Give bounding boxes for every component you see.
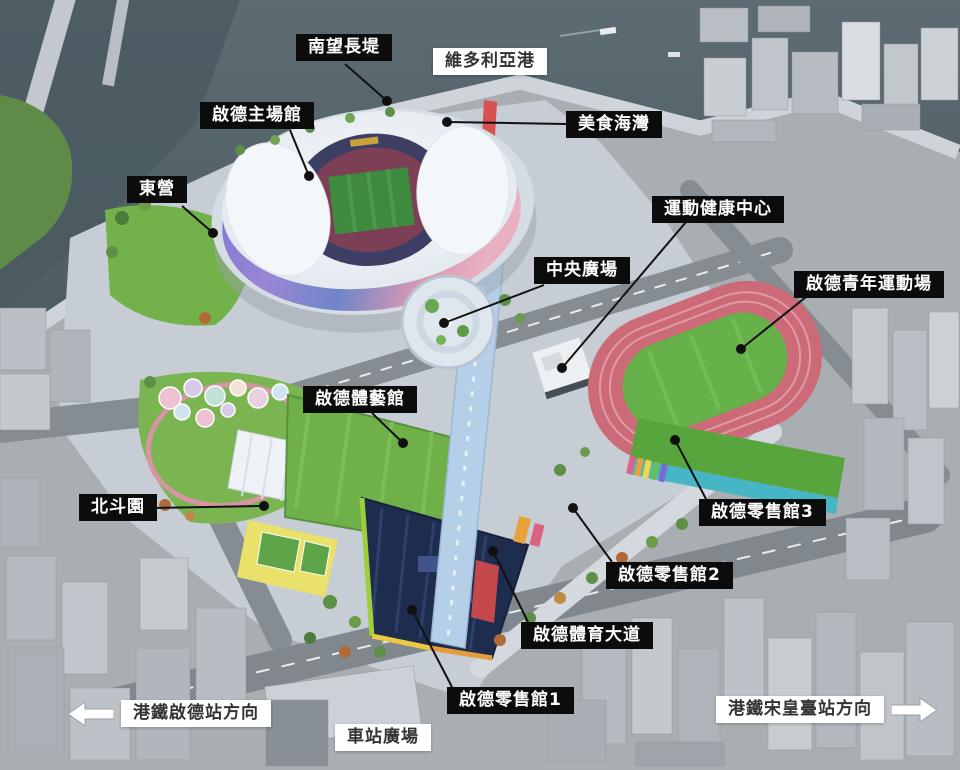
callout-youth-sports-ground: 啟德青年運動場 xyxy=(794,271,944,298)
direction-sign-label: 港鐵宋皇臺站方向 xyxy=(716,696,884,723)
callout-kai-tak-main-stadium: 啟德主場館 xyxy=(200,102,314,129)
callout-south-promenade: 南望長堤 xyxy=(296,34,392,61)
callout-health-wellness-centre: 運動健康中心 xyxy=(652,196,784,223)
area-label-victoria-harbour: 維多利亞港 xyxy=(433,48,547,75)
direction-sign-label: 港鐵啟德站方向 xyxy=(121,700,271,727)
arrow-left-icon xyxy=(68,701,114,727)
callout-tung-ying-lawn: 東營 xyxy=(127,176,187,203)
callout-sports-avenue: 啟德體育大道 xyxy=(521,622,653,649)
callout-dining-cove: 美食海灣 xyxy=(566,111,662,138)
area-label-station-square: 車站廣場 xyxy=(335,724,431,751)
callout-retail-hall-1: 啟德零售館1 xyxy=(447,687,574,714)
callout-retail-hall-3: 啟德零售館3 xyxy=(699,499,826,526)
direction-sign-mtr-sung-wong-toi-station: 港鐵宋皇臺站方向 xyxy=(716,696,937,723)
callout-pak-tau-garden: 北斗園 xyxy=(79,494,157,521)
kai-tak-sports-park-aerial-map: 南望長堤啟德主場館美食海灣東營運動健康中心中央廣場啟德青年運動場啟德體藝館北斗園… xyxy=(0,0,960,770)
callout-retail-hall-2: 啟德零售館2 xyxy=(606,562,733,589)
arrow-right-icon xyxy=(891,697,937,723)
callout-central-square: 中央廣場 xyxy=(534,257,630,284)
label-layer: 南望長堤啟德主場館美食海灣東營運動健康中心中央廣場啟德青年運動場啟德體藝館北斗園… xyxy=(0,0,960,770)
direction-sign-mtr-kai-tak-station: 港鐵啟德站方向 xyxy=(68,700,271,727)
callout-kai-tak-arena: 啟德體藝館 xyxy=(303,386,417,413)
